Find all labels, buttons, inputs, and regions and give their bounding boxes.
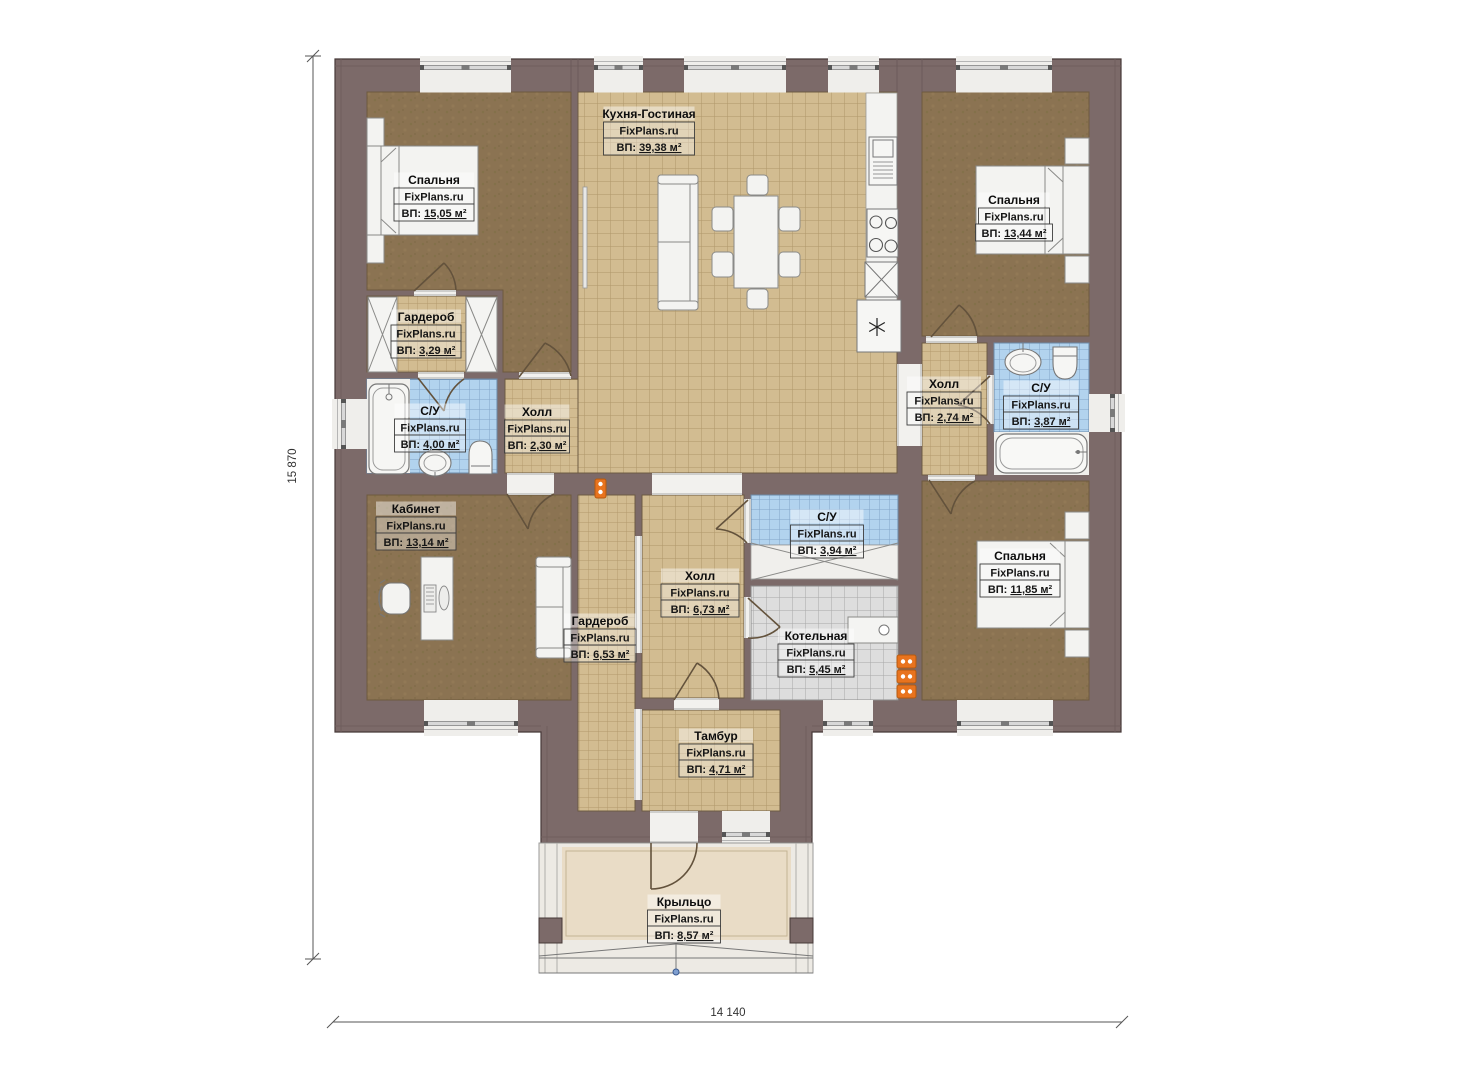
svg-text:Холл: Холл	[685, 569, 715, 583]
svg-text:Кабинет: Кабинет	[392, 502, 441, 516]
svg-text:Гардероб: Гардероб	[572, 614, 629, 628]
svg-text:С/У: С/У	[817, 510, 837, 524]
svg-text:С/У: С/У	[1031, 381, 1051, 395]
svg-text:ВП: 13,14 м²: ВП: 13,14 м²	[384, 537, 449, 549]
svg-text:ВП: 6,73 м²: ВП: 6,73 м²	[671, 604, 730, 616]
svg-text:FixPlans.ru: FixPlans.ru	[984, 212, 1043, 224]
svg-text:FixPlans.ru: FixPlans.ru	[570, 633, 629, 645]
svg-text:FixPlans.ru: FixPlans.ru	[686, 748, 745, 760]
svg-text:ВП: 8,57 м²: ВП: 8,57 м²	[655, 930, 714, 942]
svg-text:FixPlans.ru: FixPlans.ru	[797, 529, 856, 541]
svg-text:ВП: 2,74 м²: ВП: 2,74 м²	[915, 412, 974, 424]
svg-text:ВП: 39,38 м²: ВП: 39,38 м²	[617, 142, 682, 154]
svg-text:FixPlans.ru: FixPlans.ru	[400, 423, 459, 435]
svg-text:FixPlans.ru: FixPlans.ru	[1011, 400, 1070, 412]
svg-text:Кухня-Гостиная: Кухня-Гостиная	[602, 107, 695, 121]
svg-text:FixPlans.ru: FixPlans.ru	[396, 329, 455, 341]
svg-text:ВП: 13,44 м²: ВП: 13,44 м²	[982, 228, 1047, 240]
svg-text:FixPlans.ru: FixPlans.ru	[386, 521, 445, 533]
svg-text:ВП: 2,30 м²: ВП: 2,30 м²	[508, 440, 567, 452]
svg-text:FixPlans.ru: FixPlans.ru	[619, 126, 678, 138]
svg-text:ВП: 4,71 м²: ВП: 4,71 м²	[687, 764, 746, 776]
svg-text:FixPlans.ru: FixPlans.ru	[670, 588, 729, 600]
svg-text:Спальня: Спальня	[988, 193, 1040, 207]
svg-text:14 140: 14 140	[710, 1007, 745, 1019]
svg-text:Спальня: Спальня	[408, 173, 460, 187]
svg-text:ВП: 11,85 м²: ВП: 11,85 м²	[988, 584, 1053, 596]
svg-text:С/У: С/У	[420, 404, 440, 418]
svg-text:ВП: 15,05 м²: ВП: 15,05 м²	[402, 208, 467, 220]
svg-text:15 870: 15 870	[287, 448, 299, 483]
svg-text:ВП: 4,00 м²: ВП: 4,00 м²	[401, 439, 460, 451]
svg-text:FixPlans.ru: FixPlans.ru	[507, 424, 566, 436]
svg-text:Спальня: Спальня	[994, 549, 1046, 563]
svg-text:FixPlans.ru: FixPlans.ru	[404, 192, 463, 204]
svg-text:Холл: Холл	[929, 377, 959, 391]
svg-text:ВП: 3,94 м²: ВП: 3,94 м²	[798, 545, 857, 557]
svg-text:Тамбур: Тамбур	[694, 729, 738, 743]
svg-text:Котельная: Котельная	[785, 629, 848, 643]
svg-text:FixPlans.ru: FixPlans.ru	[786, 648, 845, 660]
svg-text:Гардероб: Гардероб	[398, 310, 455, 324]
svg-text:ВП: 5,45 м²: ВП: 5,45 м²	[787, 664, 846, 676]
svg-text:ВП: 6,53 м²: ВП: 6,53 м²	[571, 649, 630, 661]
svg-text:FixPlans.ru: FixPlans.ru	[914, 396, 973, 408]
svg-text:FixPlans.ru: FixPlans.ru	[654, 914, 713, 926]
svg-text:FixPlans.ru: FixPlans.ru	[990, 568, 1049, 580]
svg-text:ВП: 3,29 м²: ВП: 3,29 м²	[397, 345, 456, 357]
svg-text:Крыльцо: Крыльцо	[657, 895, 712, 909]
svg-text:ВП: 3,87 м²: ВП: 3,87 м²	[1012, 416, 1071, 428]
svg-text:Холл: Холл	[522, 405, 552, 419]
